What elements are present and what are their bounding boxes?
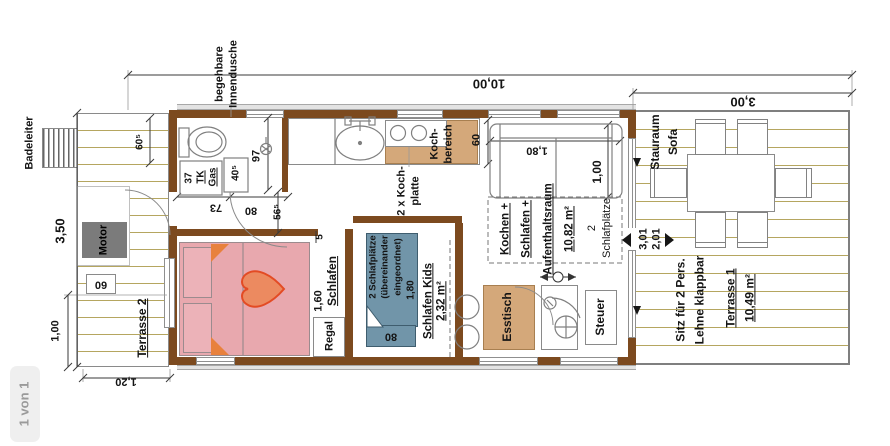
- bunk-notch: [367, 306, 383, 327]
- dim-toilet: 60⁵: [134, 134, 146, 150]
- label-terrasse2: Terrasse 2: [136, 298, 150, 357]
- toilet-bowl: [188, 127, 226, 157]
- door-width-arrow-right: [665, 233, 674, 247]
- label-aufenthaltsraum: Kochen + Schlafen + Aufenthaltsraum 10,8…: [495, 183, 580, 274]
- label-esstisch: Esstisch: [501, 292, 515, 341]
- label-bunk: 2 Schlafplätze (übereinander eingeordnet…: [367, 235, 404, 298]
- label-schlafen: Schlafen: [326, 256, 340, 306]
- wall-arrow-2: [633, 306, 641, 315]
- label-kochbereich: Koch- bereich: [428, 124, 456, 163]
- dim-platform-height: 1,00: [50, 320, 63, 341]
- extension-lines: [64, 70, 852, 382]
- dim-sofa-length: 1,80: [526, 144, 547, 157]
- dim-bed: 1,60: [313, 290, 326, 311]
- label-badeleiter: Badeleiter: [24, 116, 37, 169]
- dim-bunk-width: 80: [385, 330, 397, 343]
- dim-shower: 97: [251, 150, 264, 162]
- wall-arrow-1: [633, 158, 641, 167]
- stool-1: [455, 295, 479, 319]
- dim-hull-width: 3,50: [54, 218, 69, 243]
- hob-burner-1: [391, 126, 406, 141]
- label-steuer: Steuer: [594, 298, 608, 335]
- dim-door-widths: 3,01 2,01: [637, 228, 662, 249]
- door-width-arrow-left: [622, 233, 631, 247]
- heart-icon: [242, 271, 284, 306]
- label-stauraum-sofa: Stauraum Sofa: [646, 114, 682, 169]
- blanket-fold-bottom: [211, 337, 229, 355]
- dim-counter: 60: [471, 134, 484, 146]
- label-schlafplaetze: 2 Schlafplätze: [585, 198, 615, 258]
- hob-burner-2: [412, 126, 427, 141]
- label-motor: Motor: [98, 225, 111, 256]
- stern-door-arc: [515, 287, 553, 325]
- dim-bunk-length: 1,80: [405, 280, 417, 299]
- dim-platform-width: 1,20: [115, 375, 136, 388]
- label-schlafen-kids: Schlafen Kids 2,32 m²: [422, 263, 447, 339]
- label-innendusche: begehbare Innendusche: [213, 40, 241, 108]
- dim-hall-b: 80: [245, 204, 257, 217]
- label-tk-gas: TK Gas: [196, 168, 219, 187]
- dim-hall-depth: 56⁵: [272, 204, 284, 220]
- bed-decorations: [211, 244, 284, 355]
- dim-wall-gap: 5: [314, 234, 326, 240]
- label-sitz: Sitz für 2 Pers. Lehne klappbar: [671, 256, 708, 345]
- dim-sofa-depth: 1,00: [591, 160, 605, 183]
- dim-motor-step: 60: [95, 278, 107, 291]
- entrance-door-arc: [125, 190, 170, 235]
- page-indicator-text: 1 von 1: [18, 382, 33, 427]
- label-kochplatte: 2 x Koch- platte: [395, 166, 423, 216]
- label-terrasse1: Terrasse 1 10,49 m²: [721, 268, 758, 327]
- blanket-fold-top: [211, 244, 229, 262]
- dimension-lines: [64, 71, 856, 382]
- dim-tk: 37: [183, 172, 195, 183]
- floorplan-page: { "viewer": { "page_indicator": "1 von 1…: [0, 0, 890, 446]
- label-regal: Regal: [324, 321, 337, 351]
- dim-closet: 40⁵: [230, 165, 242, 181]
- page-indicator-badge: 1 von 1: [10, 366, 40, 442]
- stool-2: [455, 325, 479, 349]
- dim-total-length: 10,00: [473, 76, 506, 91]
- dim-terrace-length: 3,00: [730, 94, 755, 109]
- dim-hall-a: 73: [210, 201, 222, 214]
